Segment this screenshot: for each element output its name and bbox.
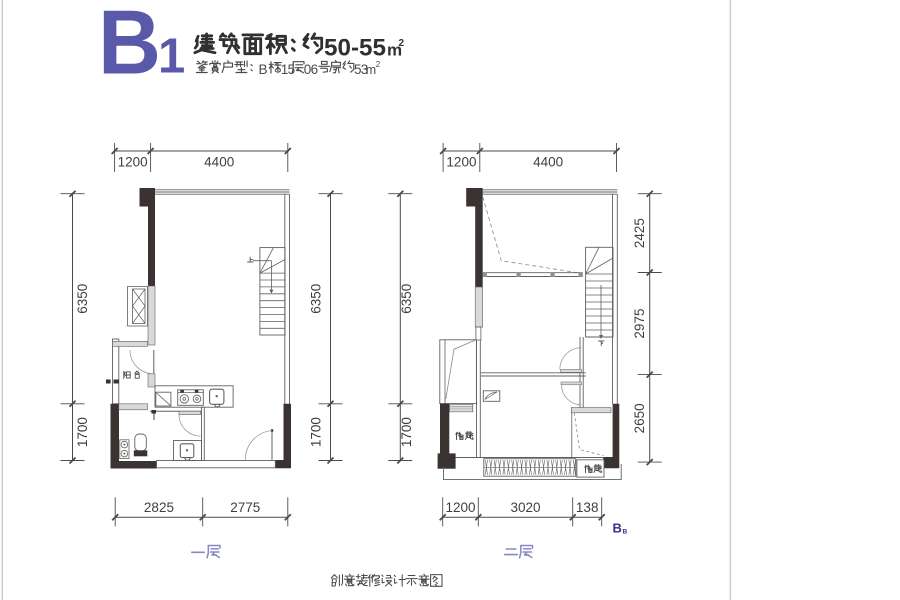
svg-text:15: 15	[281, 62, 295, 77]
svg-text:1200: 1200	[445, 500, 475, 515]
svg-text:2: 2	[399, 38, 405, 49]
svg-text:2825: 2825	[144, 500, 174, 515]
svg-text:1200: 1200	[118, 155, 148, 170]
svg-text:3020: 3020	[510, 500, 540, 515]
svg-text:B: B	[259, 62, 268, 77]
svg-text:1700: 1700	[399, 417, 414, 447]
svg-text:1: 1	[158, 30, 185, 84]
svg-text:B: B	[623, 529, 628, 536]
svg-text:2775: 2775	[230, 500, 260, 515]
svg-text:2425: 2425	[632, 218, 647, 248]
svg-text:06: 06	[304, 62, 318, 77]
svg-text:138: 138	[576, 500, 599, 515]
svg-text:B: B	[98, 0, 161, 94]
svg-text:4400: 4400	[204, 155, 234, 170]
svg-text:1700: 1700	[75, 417, 90, 447]
svg-text:1200: 1200	[446, 155, 476, 170]
svg-text:6350: 6350	[75, 284, 90, 314]
svg-text:1700: 1700	[309, 417, 324, 447]
svg-text:4400: 4400	[533, 155, 563, 170]
svg-text:2650: 2650	[632, 403, 647, 433]
svg-text:6350: 6350	[399, 284, 414, 314]
svg-text:50-55: 50-55	[324, 35, 386, 62]
svg-text:m: m	[366, 63, 376, 77]
svg-text:2975: 2975	[632, 309, 647, 339]
svg-text:B: B	[613, 521, 622, 536]
svg-text:2: 2	[376, 60, 381, 69]
svg-text:6350: 6350	[309, 284, 324, 314]
